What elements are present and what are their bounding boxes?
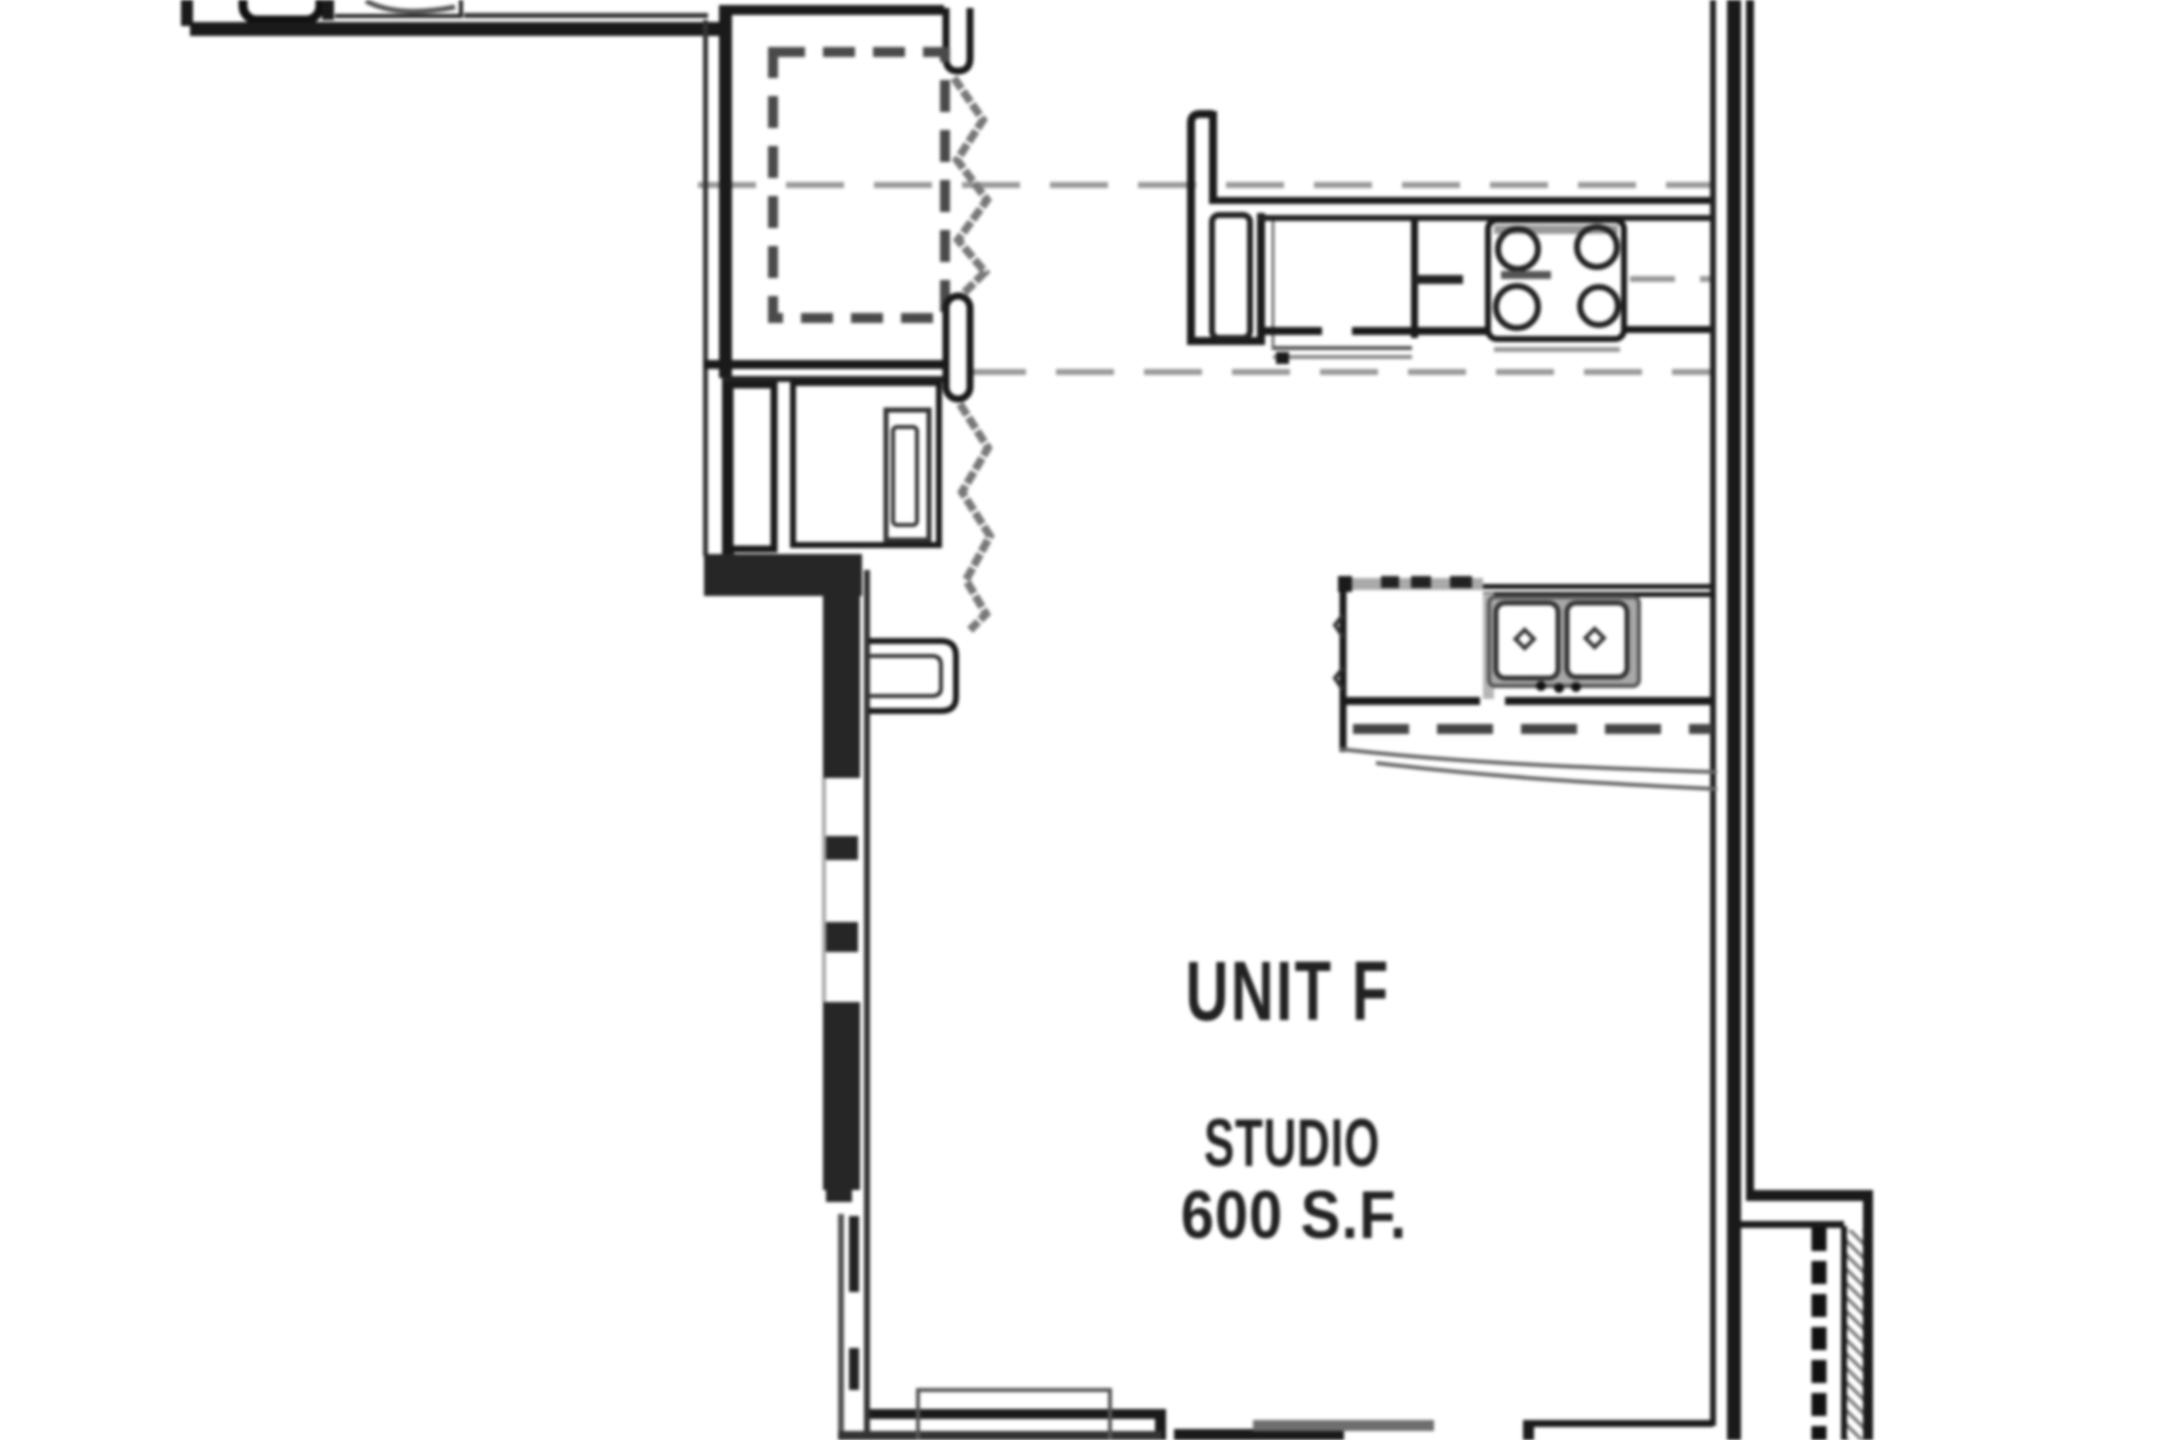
svg-text:600 S.F.: 600 S.F. — [1181, 1176, 1408, 1252]
svg-text:UNIT F: UNIT F — [1186, 945, 1391, 1038]
svg-text:STUDIO: STUDIO — [1204, 1106, 1380, 1181]
